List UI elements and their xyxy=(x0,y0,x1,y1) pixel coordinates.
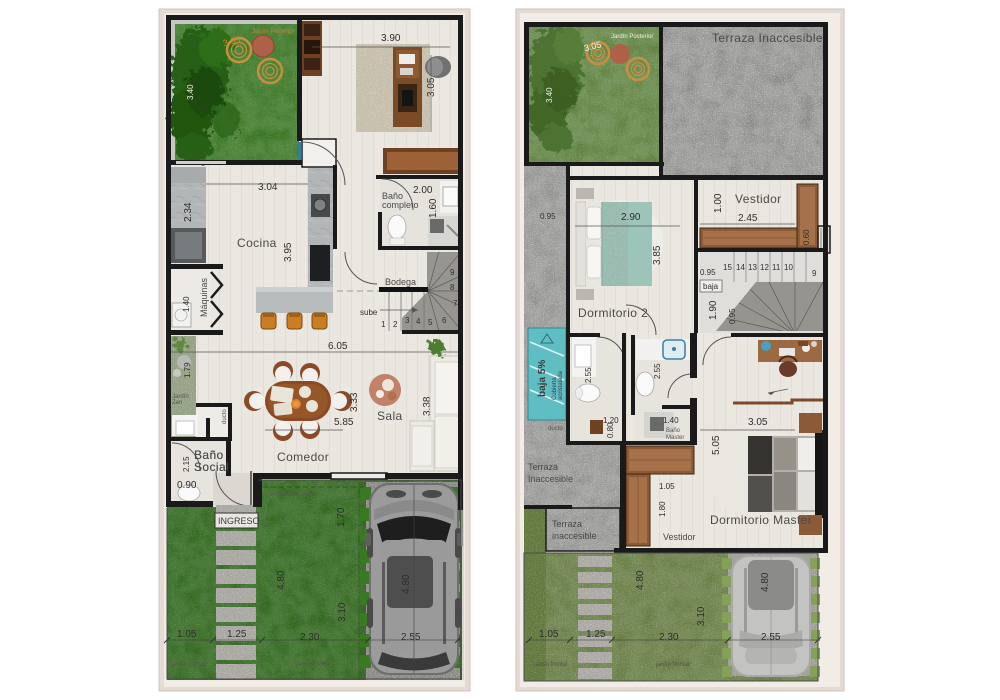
svg-text:6.05: 6.05 xyxy=(328,341,348,352)
svg-text:1: 1 xyxy=(381,320,386,329)
svg-text:9: 9 xyxy=(450,268,455,277)
svg-text:Dormitorio Master: Dormitorio Master xyxy=(710,513,812,527)
svg-text:ducto: ducto xyxy=(548,426,563,432)
svg-text:Cocina: Cocina xyxy=(237,236,277,250)
svg-text:Terraza: Terraza xyxy=(528,462,558,472)
svg-text:3.33: 3.33 xyxy=(349,392,360,412)
svg-text:Dormitorio 2: Dormitorio 2 xyxy=(578,306,648,320)
svg-text:3: 3 xyxy=(405,316,410,325)
svg-text:INGRESO: INGRESO xyxy=(218,516,260,526)
svg-text:1.79: 1.79 xyxy=(183,362,192,378)
svg-text:1.05: 1.05 xyxy=(539,629,559,640)
svg-text:0.90: 0.90 xyxy=(177,480,197,491)
svg-text:Inaccesible: Inaccesible xyxy=(528,474,573,484)
svg-text:Sala: Sala xyxy=(377,409,403,423)
svg-text:14: 14 xyxy=(736,263,745,272)
svg-text:11: 11 xyxy=(772,263,781,272)
svg-text:Terraza: Terraza xyxy=(552,519,582,529)
svg-text:4: 4 xyxy=(416,317,421,326)
svg-text:2.30: 2.30 xyxy=(300,632,320,643)
svg-text:ducto: ducto xyxy=(222,409,228,424)
svg-text:1.00: 1.00 xyxy=(713,193,724,213)
svg-text:2.90: 2.90 xyxy=(621,212,641,223)
svg-text:4.80: 4.80 xyxy=(401,574,412,594)
svg-text:2.45: 2.45 xyxy=(738,213,758,224)
svg-text:2.55: 2.55 xyxy=(584,367,593,383)
svg-text:1.05: 1.05 xyxy=(659,482,675,491)
svg-text:2.55: 2.55 xyxy=(653,363,662,379)
svg-text:12: 12 xyxy=(760,263,769,272)
svg-text:1.05: 1.05 xyxy=(177,629,197,640)
svg-text:3.40: 3.40 xyxy=(186,84,195,100)
svg-text:1.40: 1.40 xyxy=(663,416,679,425)
svg-text:3.10: 3.10 xyxy=(337,602,348,622)
svg-text:2.34: 2.34 xyxy=(183,202,194,222)
svg-text:2.55: 2.55 xyxy=(401,632,421,643)
svg-text:3.90: 3.90 xyxy=(381,33,401,44)
svg-text:1.70: 1.70 xyxy=(336,507,347,527)
svg-text:1.80: 1.80 xyxy=(658,501,667,517)
svg-text:Zen: Zen xyxy=(172,400,182,406)
svg-text:3.40: 3.40 xyxy=(545,87,554,103)
svg-text:10: 10 xyxy=(784,263,793,272)
svg-text:0.80: 0.80 xyxy=(606,422,615,438)
svg-text:0.95: 0.95 xyxy=(728,308,737,324)
svg-text:13: 13 xyxy=(748,263,757,272)
svg-text:jardín frontal: jardín frontal xyxy=(171,662,205,668)
svg-text:2.30: 2.30 xyxy=(659,632,679,643)
svg-text:8: 8 xyxy=(450,283,455,292)
svg-text:6: 6 xyxy=(442,316,447,325)
svg-text:baja 5%: baja 5% xyxy=(537,360,548,397)
svg-text:5: 5 xyxy=(428,318,433,327)
svg-text:inaccesible: inaccesible xyxy=(552,531,597,541)
svg-text:3.10: 3.10 xyxy=(696,606,707,626)
svg-text:2.00: 2.00 xyxy=(413,185,433,196)
svg-text:2.55: 2.55 xyxy=(761,632,781,643)
svg-text:0.95: 0.95 xyxy=(700,268,716,277)
svg-text:sube: sube xyxy=(360,308,378,317)
svg-text:5.85: 5.85 xyxy=(334,417,354,428)
svg-text:9: 9 xyxy=(812,269,817,278)
svg-text:3.05: 3.05 xyxy=(426,77,437,97)
svg-text:4.80: 4.80 xyxy=(635,570,646,590)
svg-text:2: 2 xyxy=(393,320,398,329)
svg-text:jardín frontal: jardín frontal xyxy=(295,662,329,668)
svg-text:Comedor: Comedor xyxy=(277,450,329,464)
svg-text:Bodega: Bodega xyxy=(385,277,416,287)
svg-text:Baño: Baño xyxy=(666,428,681,434)
svg-text:2.15: 2.15 xyxy=(182,456,191,472)
svg-text:3.85: 3.85 xyxy=(652,245,663,265)
svg-text:jardín frontal: jardín frontal xyxy=(533,662,567,668)
svg-text:acristalada: acristalada xyxy=(558,370,564,400)
svg-text:3.05: 3.05 xyxy=(748,417,768,428)
svg-text:4.80: 4.80 xyxy=(276,570,287,590)
svg-text:4.80: 4.80 xyxy=(760,572,771,592)
svg-text:5.05: 5.05 xyxy=(711,435,722,455)
svg-text:Master: Master xyxy=(666,435,684,441)
svg-text:15: 15 xyxy=(723,263,732,272)
svg-text:7: 7 xyxy=(453,299,458,308)
svg-text:Vestidor: Vestidor xyxy=(735,192,782,206)
svg-text:Social: Social xyxy=(194,460,229,474)
svg-text:1.25: 1.25 xyxy=(227,629,247,640)
svg-text:baja: baja xyxy=(703,282,719,291)
svg-text:Proyección techo: Proyección techo xyxy=(270,492,317,498)
svg-text:jardín frontal: jardín frontal xyxy=(655,662,689,668)
svg-text:Jardín Posterior: Jardín Posterior xyxy=(252,29,294,35)
svg-text:Terraza Inaccesible: Terraza Inaccesible xyxy=(712,31,823,45)
svg-text:1.25: 1.25 xyxy=(586,629,606,640)
svg-text:1.60: 1.60 xyxy=(428,198,439,218)
svg-text:0.60: 0.60 xyxy=(802,229,811,245)
svg-text:Máquinas: Máquinas xyxy=(199,277,209,317)
svg-text:Vestidor: Vestidor xyxy=(663,532,696,542)
svg-text:Jardín Posterior: Jardín Posterior xyxy=(611,34,653,40)
svg-text:1.40: 1.40 xyxy=(182,296,191,312)
svg-text:0.95: 0.95 xyxy=(540,212,556,221)
svg-text:3.95: 3.95 xyxy=(283,242,294,262)
svg-text:1.90: 1.90 xyxy=(708,300,719,320)
